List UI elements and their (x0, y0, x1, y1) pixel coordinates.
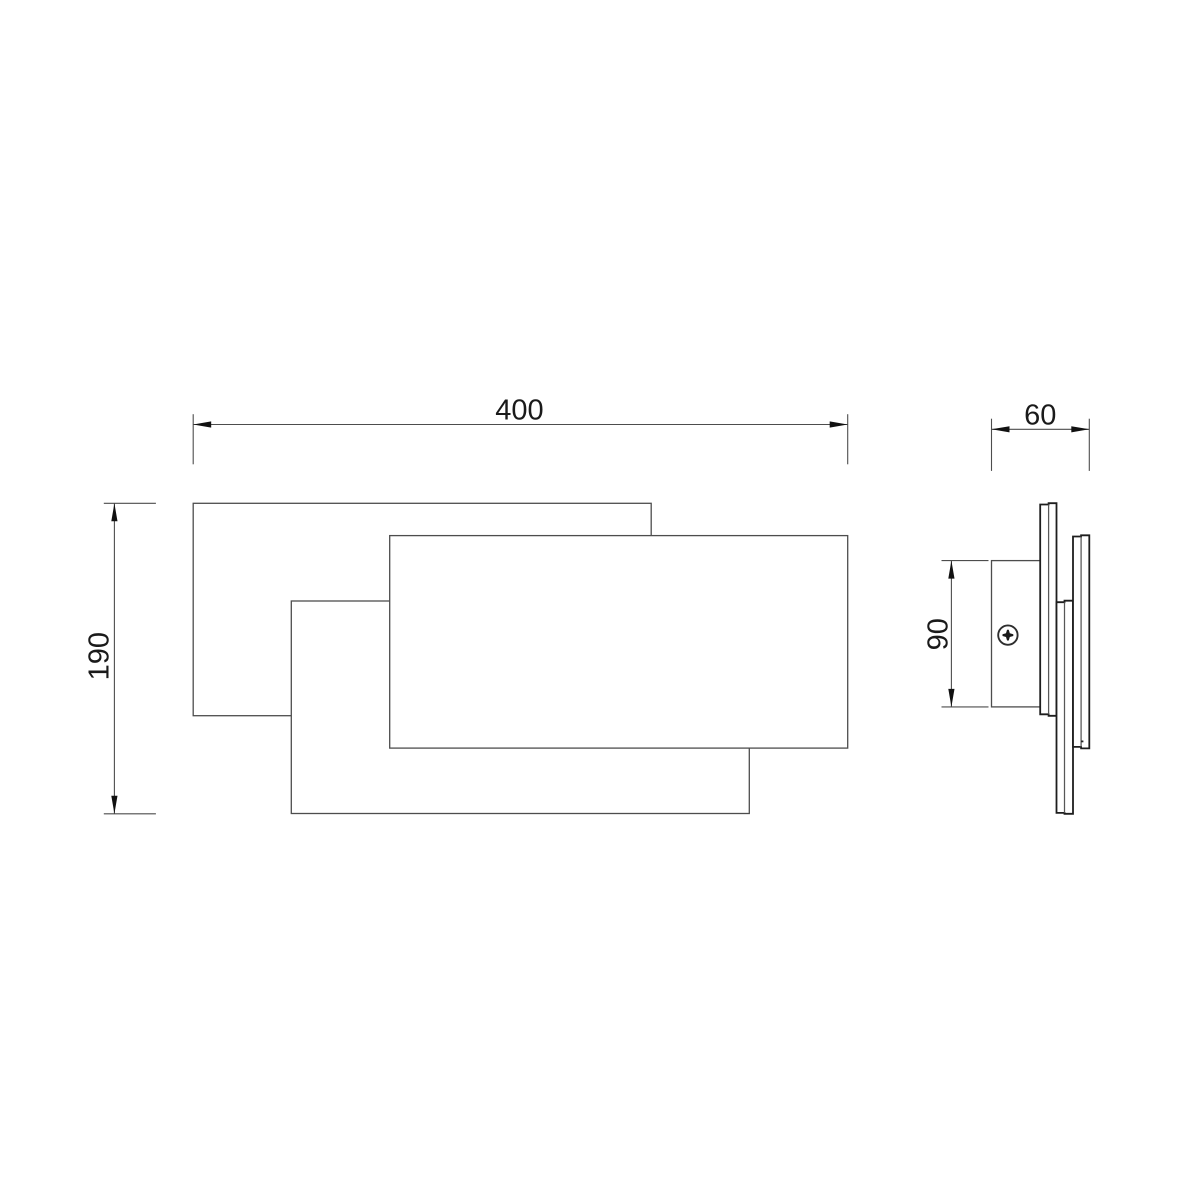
svg-text:90: 90 (923, 618, 955, 650)
svg-text:190: 190 (83, 632, 115, 680)
svg-text:400: 400 (495, 394, 543, 426)
svg-text:60: 60 (1024, 399, 1056, 431)
